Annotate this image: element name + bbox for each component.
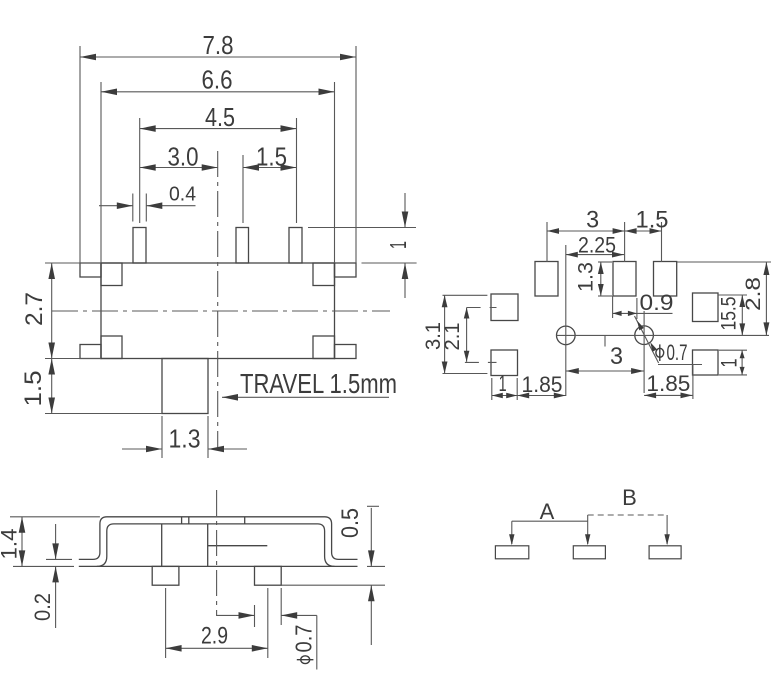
svg-text:1.5: 1.5	[636, 207, 669, 234]
svg-text:1.5: 1.5	[256, 142, 287, 172]
svg-text:1.85: 1.85	[522, 372, 563, 397]
svg-text:7.8: 7.8	[203, 30, 234, 60]
svg-text:15.5: 15.5	[718, 297, 741, 331]
svg-text:1.3: 1.3	[575, 262, 598, 292]
svg-text:0.7: 0.7	[291, 625, 317, 653]
svg-text:1.5: 1.5	[20, 371, 47, 407]
svg-text:1.85: 1.85	[646, 371, 690, 396]
svg-text:0.7: 0.7	[667, 340, 688, 365]
svg-text:2.7: 2.7	[21, 292, 48, 326]
svg-text:2.8: 2.8	[742, 277, 765, 311]
svg-text:3.0: 3.0	[168, 142, 199, 172]
svg-text:1: 1	[499, 371, 507, 396]
svg-text:A: A	[540, 499, 555, 524]
svg-text:2.1: 2.1	[441, 323, 464, 351]
svg-text:4.5: 4.5	[205, 102, 235, 132]
svg-text:0.5: 0.5	[337, 508, 364, 538]
svg-text:0.9: 0.9	[640, 290, 674, 315]
svg-text:TRAVEL 1.5mm: TRAVEL 1.5mm	[240, 368, 397, 399]
svg-text:0.4: 0.4	[169, 184, 196, 206]
svg-text:3: 3	[610, 343, 623, 370]
svg-text:2.25: 2.25	[578, 233, 616, 258]
svg-text:1.4: 1.4	[0, 529, 22, 560]
svg-text:6.6: 6.6	[202, 65, 233, 95]
svg-text:1: 1	[385, 241, 411, 249]
svg-text:1: 1	[716, 359, 741, 368]
svg-text:B: B	[622, 485, 637, 510]
svg-text:2.9: 2.9	[201, 623, 228, 650]
svg-text:1.3: 1.3	[169, 424, 201, 454]
svg-text:3: 3	[586, 207, 599, 234]
svg-text:0.2: 0.2	[30, 593, 55, 621]
